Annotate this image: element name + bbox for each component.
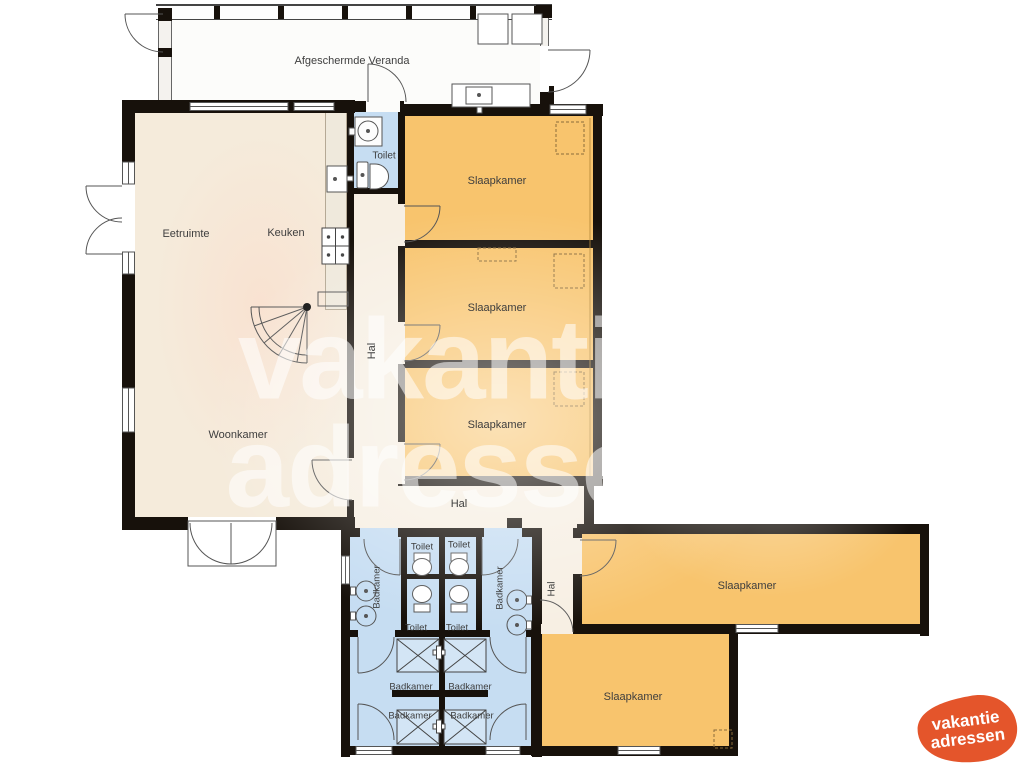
door-opening bbox=[188, 517, 276, 530]
wall bbox=[593, 104, 602, 486]
room-label-badkamer-r3a: Badkamer bbox=[388, 711, 431, 722]
door-arc bbox=[86, 218, 122, 254]
door-opening bbox=[360, 528, 398, 537]
door-opening bbox=[490, 630, 526, 637]
room-label-slaapkamer-1: Slaapkamer bbox=[468, 175, 527, 187]
room-label-badkamer-left: Badkamer bbox=[372, 565, 383, 608]
wall bbox=[398, 360, 595, 368]
room-label-slaapkamer-3: Slaapkamer bbox=[468, 419, 527, 431]
room-hall-vertical bbox=[352, 191, 400, 530]
wall bbox=[401, 535, 407, 634]
door-arc bbox=[548, 50, 590, 92]
room-label-toilet-2: Toilet bbox=[448, 540, 470, 551]
wall bbox=[577, 624, 929, 634]
room-label-toilet-top: Toilet bbox=[372, 151, 395, 162]
room-bedroom-4 bbox=[578, 528, 924, 628]
room-label-veranda: Afgeschermde Veranda bbox=[295, 55, 410, 67]
room-label-badkamer-r2a: Badkamer bbox=[389, 682, 432, 693]
wall bbox=[729, 630, 738, 756]
wall bbox=[577, 524, 929, 534]
door-opening bbox=[398, 322, 405, 364]
room-bedroom-5 bbox=[534, 628, 734, 752]
wall bbox=[476, 535, 482, 634]
room-label-slaapkamer-5: Slaapkamer bbox=[604, 691, 663, 703]
door-opening bbox=[347, 458, 354, 500]
vakantieadressen-logo: vakantie adressen bbox=[910, 690, 1024, 766]
door-opening bbox=[541, 624, 573, 634]
wall bbox=[401, 574, 482, 579]
wall bbox=[584, 476, 594, 528]
wall bbox=[398, 240, 595, 248]
kitchen-counter bbox=[325, 112, 347, 310]
room-label-toilet-3: Toilet bbox=[405, 623, 427, 634]
floor-plan: vakantie adressen Afgeschermde Veranda E… bbox=[0, 0, 1024, 768]
wall bbox=[531, 624, 539, 756]
room-label-badkamer-r2b: Badkamer bbox=[448, 682, 491, 693]
room-label-hal-vertical: Hal bbox=[366, 343, 378, 360]
wall bbox=[341, 528, 350, 757]
room-label-badkamer-r3b: Badkamer bbox=[450, 711, 493, 722]
door-opening bbox=[366, 101, 400, 112]
door-arc bbox=[86, 186, 122, 222]
door-opening bbox=[398, 442, 405, 484]
room-label-hal-2: Hal bbox=[547, 581, 558, 596]
room-label-woonkamer: Woonkamer bbox=[208, 429, 267, 441]
door-opening bbox=[358, 630, 395, 637]
room-label-eetruimte: Eetruimte bbox=[162, 228, 209, 240]
door-opening bbox=[122, 184, 135, 254]
wall bbox=[439, 535, 445, 634]
wall bbox=[920, 524, 929, 636]
door-opening bbox=[484, 528, 522, 537]
wall bbox=[531, 746, 738, 756]
room-label-hal-horizontal: Hal bbox=[451, 498, 468, 510]
room-label-toilet-1: Toilet bbox=[411, 542, 433, 553]
wall bbox=[398, 108, 405, 485]
door-opening bbox=[398, 204, 405, 246]
door-opening bbox=[540, 46, 549, 92]
room-hall-2 bbox=[538, 530, 574, 628]
room-label-slaapkamer-4: Slaapkamer bbox=[718, 580, 777, 592]
room-label-keuken: Keuken bbox=[267, 227, 304, 239]
wall bbox=[122, 100, 135, 530]
wall bbox=[158, 8, 172, 21]
room-label-badkamer-right: Badkamer bbox=[495, 566, 506, 609]
door-opening bbox=[573, 538, 582, 574]
wall bbox=[540, 104, 602, 114]
room-living bbox=[125, 103, 351, 523]
wall bbox=[158, 48, 172, 57]
wall bbox=[398, 476, 603, 486]
room-label-toilet-4: Toilet bbox=[446, 623, 468, 634]
room-hall-horizontal bbox=[352, 483, 588, 530]
wall bbox=[122, 100, 355, 113]
wall bbox=[350, 188, 404, 194]
wall-post bbox=[536, 5, 552, 18]
room-label-slaapkamer-2: Slaapkamer bbox=[468, 302, 527, 314]
veranda-screen-wall bbox=[156, 4, 552, 20]
